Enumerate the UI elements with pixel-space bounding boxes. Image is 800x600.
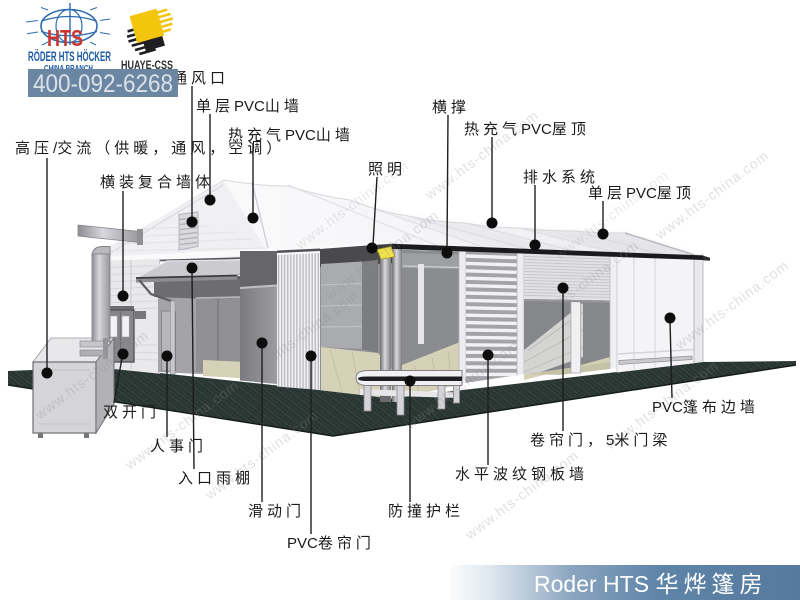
- svg-text:入口雨棚: 入口雨棚: [178, 470, 254, 487]
- svg-text:排水系统: 排水系统: [523, 169, 599, 186]
- svg-text:卷帘门，5米门梁: 卷帘门，5米门梁: [530, 432, 671, 449]
- svg-text:Roder HTS 华烨篷房: Roder HTS 华烨篷房: [534, 571, 767, 597]
- svg-text:热充气PVC山墙: 热充气PVC山墙: [228, 127, 354, 144]
- svg-text:水平波纹钢板墙: 水平波纹钢板墙: [455, 465, 588, 483]
- svg-text:热充气PVC屋顶: 热充气PVC屋顶: [464, 121, 590, 138]
- svg-text:人事门: 人事门: [150, 438, 207, 455]
- svg-text:PVC卷帘门: PVC卷帘门: [287, 535, 375, 552]
- svg-text:滑动门: 滑动门: [248, 503, 305, 520]
- svg-text:防撞护栏: 防撞护栏: [388, 502, 464, 520]
- svg-text:横撑: 横撑: [432, 99, 470, 116]
- svg-text:照明: 照明: [368, 161, 406, 178]
- svg-text:横装复合墙体: 横装复合墙体: [100, 173, 214, 191]
- svg-text:HTS: HTS: [47, 25, 83, 51]
- svg-text:通风口: 通风口: [172, 70, 229, 87]
- svg-text:单层PVC山墙: 单层PVC山墙: [196, 98, 303, 115]
- svg-text:单层PVC屋顶: 单层PVC屋顶: [588, 185, 695, 202]
- svg-text:400-092-6268: 400-092-6268: [33, 70, 173, 98]
- svg-text:双开门: 双开门: [103, 404, 160, 421]
- svg-text:PVC篷布边墙: PVC篷布边墙: [652, 398, 759, 416]
- svg-text:RÖDER HTS HÖCKER: RÖDER HTS HÖCKER: [28, 49, 111, 64]
